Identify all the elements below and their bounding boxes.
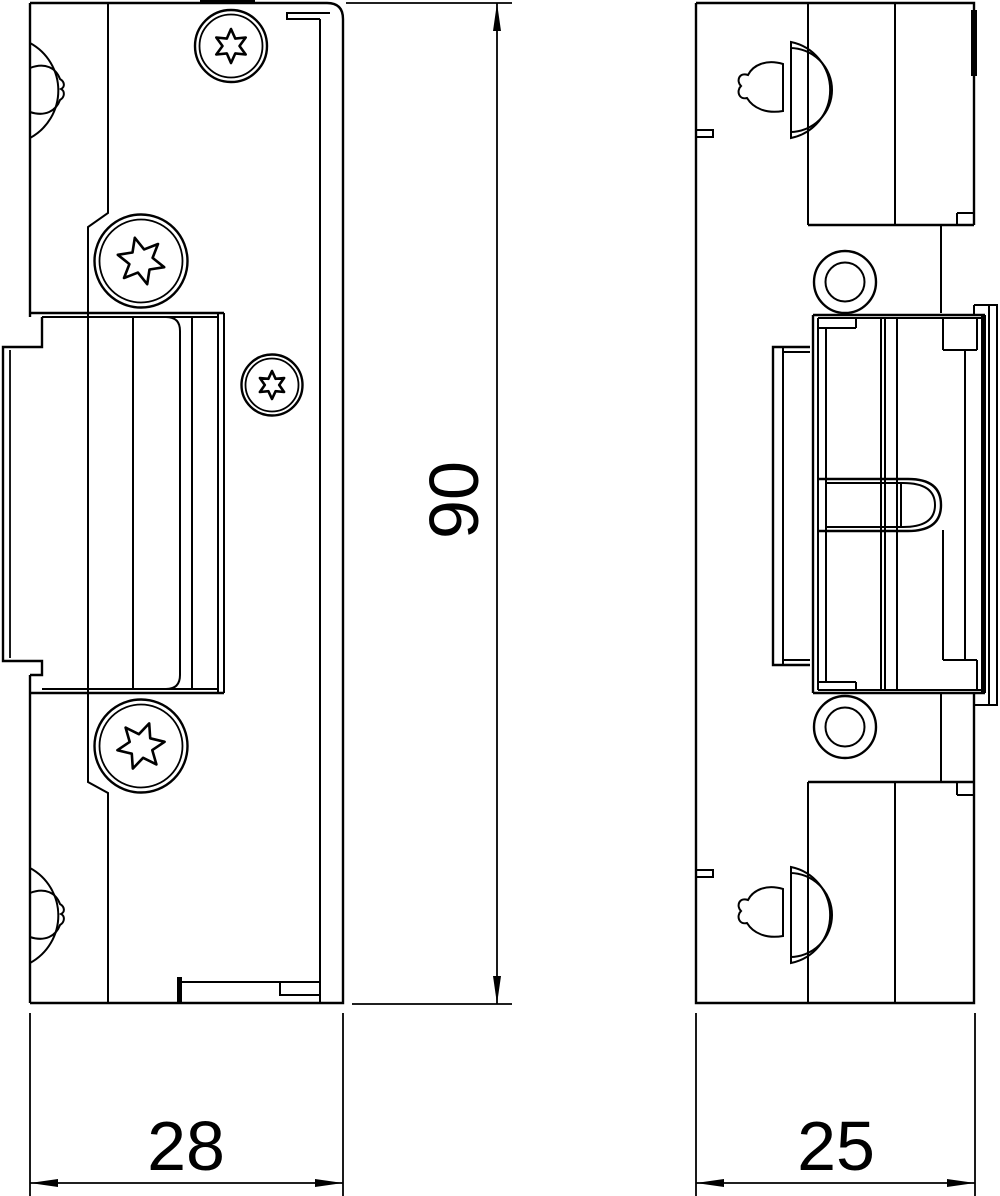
edge-slot-bottom	[696, 870, 713, 877]
dimension-side-width: 25	[696, 1013, 975, 1196]
side-view	[696, 3, 997, 1003]
dim-height-value: 90	[415, 461, 493, 539]
dim-front-width-value: 28	[147, 1107, 225, 1185]
faceplate-top-lip	[287, 13, 330, 19]
arrow-right	[315, 1179, 343, 1187]
latch-housing	[813, 315, 986, 693]
arrow-left	[696, 1179, 724, 1187]
front-view	[3, 0, 343, 1003]
side-top-tab	[971, 10, 977, 76]
keeper-plate-side	[773, 347, 810, 665]
technical-drawing: 90 28 25	[0, 0, 1000, 1196]
latch-bolt-face	[133, 317, 180, 689]
torx-screw-middle	[95, 215, 188, 308]
dimension-front-width: 28	[30, 1013, 343, 1196]
edge-slot-top	[696, 130, 713, 137]
torx-screw-small	[242, 355, 303, 416]
front-outline	[30, 3, 343, 1003]
cone-buffer-top	[739, 42, 832, 138]
arrow-up	[493, 3, 501, 31]
buffer-arc-top	[30, 43, 58, 138]
torx-screw-top	[195, 10, 267, 82]
top-tab	[200, 0, 255, 4]
side-top-notch	[957, 213, 974, 225]
side-bottom-notch	[957, 782, 974, 795]
arrow-down	[493, 976, 501, 1004]
body-step-line	[88, 3, 108, 1003]
faceplate-edge	[981, 315, 986, 693]
arrow-left	[30, 1179, 58, 1187]
keeper-lip	[3, 317, 42, 675]
bottom-step-notch	[280, 982, 320, 995]
side-outline-top	[696, 3, 974, 225]
cone-buffer-bottom	[739, 867, 832, 963]
side-outline-left-bottom	[696, 3, 974, 1003]
ring-top	[814, 251, 876, 313]
bottom-tab	[177, 977, 182, 1003]
arrow-right	[947, 1179, 975, 1187]
buffer-arc-bottom	[30, 868, 58, 963]
ring-bottom	[814, 696, 876, 758]
dim-side-width-value: 25	[797, 1107, 875, 1185]
drawing-sheet: 90 28 25	[0, 0, 1000, 1196]
dimension-height: 90	[346, 3, 512, 1004]
torx-screw-bottom	[95, 700, 188, 793]
